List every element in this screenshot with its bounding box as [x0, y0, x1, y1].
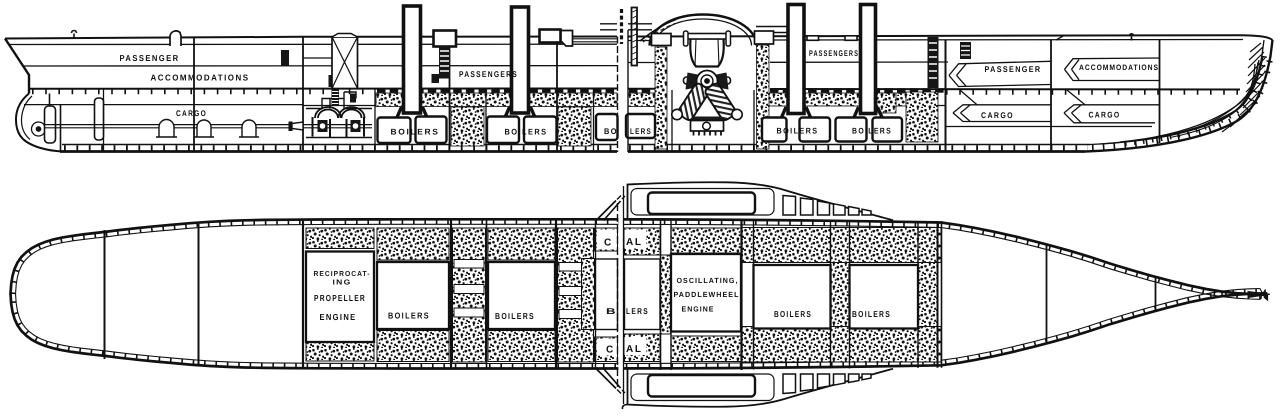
svg-text:PADDLEWHEEL: PADDLEWHEEL: [674, 290, 740, 299]
svg-text:PASSENGERS: PASSENGERS: [809, 49, 859, 58]
svg-text:ENGINE: ENGINE: [682, 305, 715, 314]
svg-text:ING: ING: [333, 278, 352, 287]
svg-text:BOILERS: BOILERS: [391, 128, 440, 137]
svg-text:BOILERS: BOILERS: [774, 309, 812, 319]
svg-text:AL: AL: [626, 237, 643, 248]
svg-text:ACCOMMODATIONS: ACCOMMODATIONS: [1079, 63, 1159, 72]
svg-text:AL: AL: [626, 344, 643, 355]
svg-text:C: C: [604, 238, 613, 249]
svg-text:PASSENGER: PASSENGER: [120, 53, 180, 63]
svg-text:BOILERS: BOILERS: [852, 127, 892, 136]
svg-text:BOILERS: BOILERS: [388, 311, 430, 321]
svg-text:LERS: LERS: [626, 306, 649, 316]
svg-text:BOILERS: BOILERS: [505, 128, 548, 137]
svg-text:ENGINE: ENGINE: [320, 312, 357, 322]
svg-text:BOILERS: BOILERS: [777, 127, 819, 136]
svg-text:PASSENGER: PASSENGER: [985, 64, 1042, 74]
svg-text:ACCOMMODATIONS: ACCOMMODATIONS: [151, 73, 250, 83]
svg-text:CARGO: CARGO: [981, 111, 1014, 120]
svg-text:C: C: [606, 345, 615, 356]
svg-text:OSCILLATING,: OSCILLATING,: [677, 276, 739, 285]
svg-text:BOILERS: BOILERS: [852, 309, 891, 319]
svg-text:B: B: [606, 306, 618, 316]
svg-text:LERS: LERS: [630, 127, 652, 136]
svg-text:PASSENGERS: PASSENGERS: [459, 69, 518, 79]
svg-text:BO: BO: [604, 127, 618, 136]
svg-text:BOILERS: BOILERS: [495, 311, 535, 321]
svg-text:PROPELLER: PROPELLER: [314, 293, 366, 303]
svg-text:CARGO: CARGO: [1089, 111, 1121, 120]
svg-text:CARGO: CARGO: [176, 109, 207, 118]
